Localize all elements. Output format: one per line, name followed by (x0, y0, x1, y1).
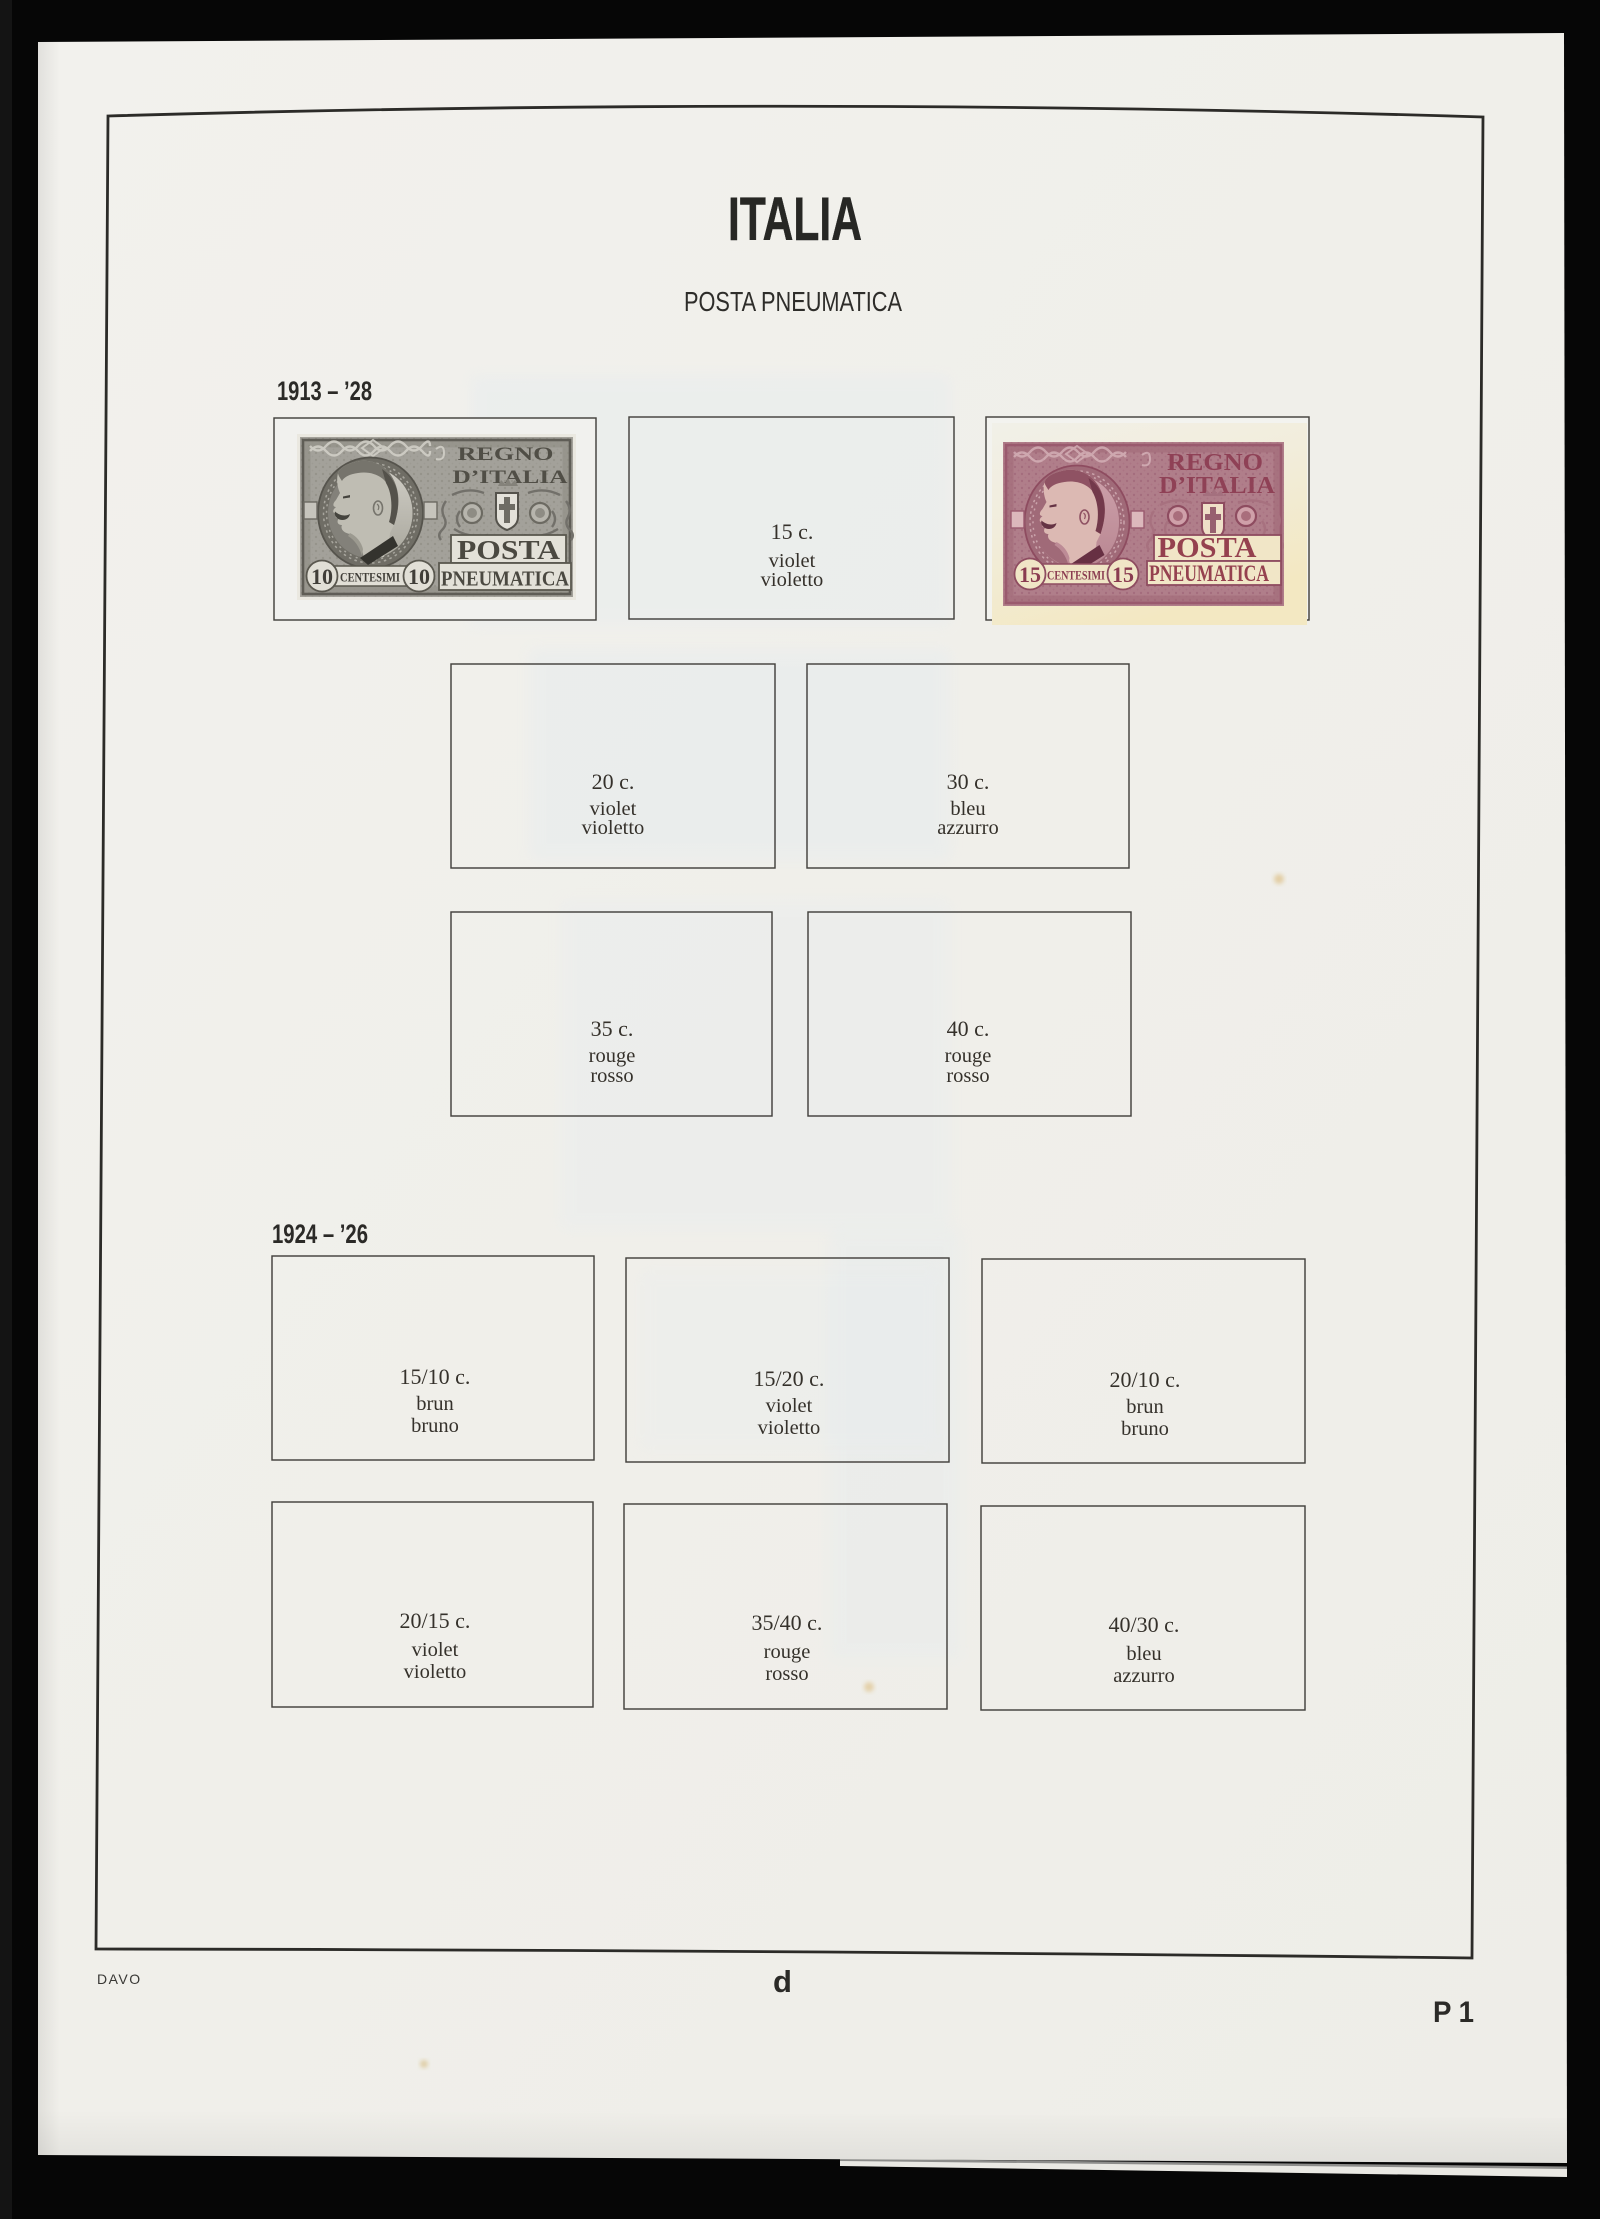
svg-text:violet: violet (766, 1395, 813, 1417)
svg-text:DAVO: DAVO (97, 1971, 142, 1987)
svg-text:violetto: violetto (582, 817, 645, 839)
svg-text:15: 15 (1019, 562, 1041, 587)
svg-text:20/15 c.: 20/15 c. (400, 1608, 471, 1633)
svg-text:20/10 c.: 20/10 c. (1110, 1367, 1181, 1392)
svg-text:azzurro: azzurro (937, 817, 998, 839)
svg-text:15: 15 (1112, 562, 1134, 587)
svg-text:rouge: rouge (945, 1045, 992, 1067)
svg-text:35/40 c.: 35/40 c. (752, 1610, 823, 1635)
svg-text:CENTESIMI: CENTESIMI (340, 571, 400, 585)
svg-text:rosso: rosso (946, 1065, 989, 1087)
svg-text:10: 10 (311, 564, 333, 589)
svg-text:rouge: rouge (589, 1045, 636, 1067)
svg-text:35 c.: 35 c. (591, 1016, 634, 1041)
svg-text:POSTA PNEUMATICA: POSTA PNEUMATICA (684, 286, 902, 317)
svg-text:CENTESIMI: CENTESIMI (1047, 569, 1105, 583)
svg-text:30 c.: 30 c. (947, 769, 990, 794)
svg-text:rosso: rosso (765, 1663, 808, 1685)
svg-text:brun: brun (1126, 1396, 1164, 1418)
svg-text:rosso: rosso (590, 1065, 633, 1087)
svg-text:40/30 c.: 40/30 c. (1109, 1612, 1180, 1637)
svg-text:REGNO: REGNO (458, 444, 554, 465)
svg-text:P 1: P 1 (1433, 1996, 1474, 2029)
svg-text:40 c.: 40 c. (947, 1016, 990, 1041)
svg-text:bruno: bruno (411, 1415, 459, 1437)
svg-text:violetto: violetto (404, 1661, 467, 1683)
svg-text:violet: violet (412, 1639, 459, 1661)
svg-text:violetto: violetto (761, 569, 824, 591)
svg-text:15/10 c.: 15/10 c. (400, 1364, 471, 1389)
svg-text:PNEUMATICA: PNEUMATICA (441, 567, 569, 591)
svg-text:15/20 c.: 15/20 c. (754, 1366, 825, 1391)
svg-text:ITALIA: ITALIA (728, 185, 862, 253)
svg-text:violetto: violetto (758, 1417, 821, 1439)
svg-text:brun: brun (416, 1393, 454, 1415)
svg-text:POSTA: POSTA (457, 535, 561, 565)
svg-text:POSTA: POSTA (1158, 533, 1258, 564)
svg-text:10: 10 (408, 564, 430, 589)
svg-text:1924 – ’26: 1924 – ’26 (272, 1219, 368, 1249)
svg-text:bleu: bleu (1126, 1643, 1161, 1665)
svg-text:azzurro: azzurro (1113, 1665, 1174, 1687)
svg-text:15 c.: 15 c. (771, 519, 814, 544)
svg-text:rouge: rouge (764, 1641, 811, 1663)
svg-text:bruno: bruno (1121, 1418, 1169, 1440)
svg-text:d: d (773, 1964, 792, 1999)
svg-text:20 c.: 20 c. (592, 769, 635, 794)
svg-text:PNEUMATICA: PNEUMATICA (1149, 561, 1269, 586)
svg-text:1913 – ’28: 1913 – ’28 (277, 376, 372, 406)
